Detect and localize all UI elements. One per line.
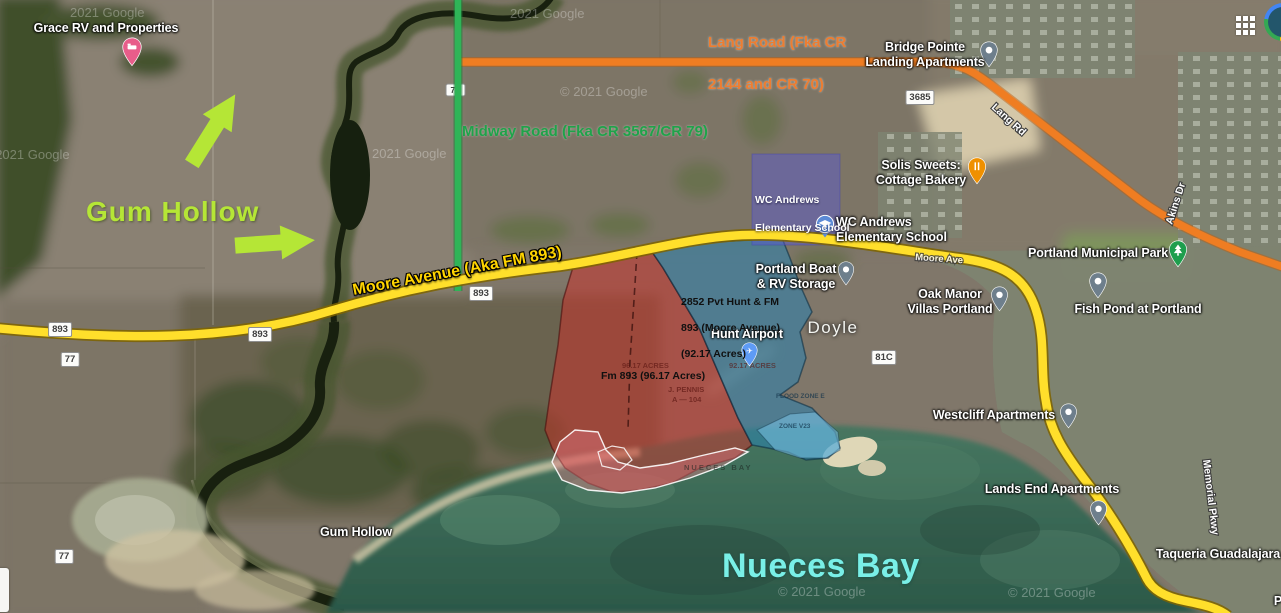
- place-label-fish-pond[interactable]: Fish Pond at Portland: [1074, 302, 1201, 317]
- route-shield-893: 893: [48, 322, 72, 337]
- route-shield-81c: 81C: [871, 350, 896, 365]
- annotation-nueces-bay: Nueces Bay: [722, 544, 920, 588]
- apps-grid-icon[interactable]: [1236, 16, 1255, 35]
- place-label-bridge-pointe[interactable]: Bridge Pointe Landing Apartments: [865, 40, 984, 70]
- google-watermark: © 2021 Google: [560, 84, 648, 99]
- google-watermark: 2021 Google: [372, 146, 446, 161]
- place-label-oak-manor[interactable]: Oak Manor Villas Portland: [907, 287, 992, 317]
- svg-text:ZONE V23: ZONE V23: [779, 423, 811, 430]
- map-canvas[interactable]: 96.17 ACRES 92.17 ACRES J. PENNIS A — 10…: [0, 0, 1281, 613]
- place-label-municipal-park[interactable]: Portland Municipal Park: [1028, 246, 1168, 261]
- pond-pin[interactable]: [1088, 272, 1108, 304]
- google-watermark: 2021 Google: [510, 6, 584, 21]
- svg-text:A — 104: A — 104: [672, 395, 702, 404]
- place-label-grace-rv[interactable]: Grace RV and Properties: [34, 21, 179, 36]
- place-label-wc-andrews[interactable]: WC Andrews Elementary School: [836, 215, 947, 245]
- svg-text:FLOOD ZONE E: FLOOD ZONE E: [776, 393, 825, 400]
- route-shield-77: 77: [61, 352, 80, 367]
- google-watermark: © 2021 Google: [0, 147, 70, 162]
- place-label-lands-end[interactable]: Lands End Apartments: [985, 482, 1119, 497]
- place-label-gum-hollow[interactable]: Gum Hollow: [320, 525, 392, 540]
- route-shield-3685: 3685: [905, 90, 934, 105]
- apartment-pin[interactable]: [1059, 403, 1078, 434]
- restaurant-pin[interactable]: [967, 157, 987, 190]
- storage-pin[interactable]: [837, 261, 855, 291]
- google-watermark: © 2021 Google: [778, 584, 866, 599]
- svg-text:96.17 ACRES: 96.17 ACRES: [622, 361, 669, 370]
- partial-place-label: P: [1274, 594, 1281, 609]
- svg-text:NUECES BAY: NUECES BAY: [684, 463, 753, 472]
- annotation-gum-hollow: Gum Hollow: [86, 194, 259, 230]
- annotation-blue-parcel: 2852 Pvt Hunt & FM 893 (Moore Avenue) (9…: [681, 283, 780, 374]
- cropped-ui-element: [0, 568, 9, 612]
- apartment-pin[interactable]: [990, 286, 1009, 317]
- place-label-westcliff[interactable]: Westcliff Apartments: [933, 408, 1055, 423]
- svg-text:Moore Ave: Moore Ave: [915, 252, 964, 266]
- annotation-midway-road: Midway Road (Fka CR 3567/CR 79): [462, 122, 708, 142]
- place-label-doyle: Doyle: [808, 320, 859, 335]
- place-label-taqueria[interactable]: Taqueria Guadalajara: [1156, 547, 1280, 562]
- apartment-pin[interactable]: [1089, 500, 1108, 531]
- google-watermark: © 2021 Google: [1008, 585, 1096, 600]
- google-watermark: 2021 Google: [70, 5, 144, 20]
- lodging-pin[interactable]: [121, 37, 143, 72]
- park-pin[interactable]: [1168, 240, 1188, 273]
- route-shield-893: 893: [469, 286, 493, 301]
- annotation-red-parcel: Fm 893 (96.17 Acres): [601, 370, 705, 383]
- route-shield-893: 893: [248, 327, 272, 342]
- svg-text:J. PENNIS: J. PENNIS: [668, 385, 704, 394]
- annotation-school-overlay: WC Andrews Elementary School: [755, 179, 850, 249]
- annotation-lang-road: Lang Road (Fka CR 2144 and CR 70): [708, 11, 846, 116]
- route-shield-77: 77: [55, 549, 74, 564]
- place-label-solis-sweets[interactable]: Solis Sweets: Cottage Bakery: [876, 158, 966, 188]
